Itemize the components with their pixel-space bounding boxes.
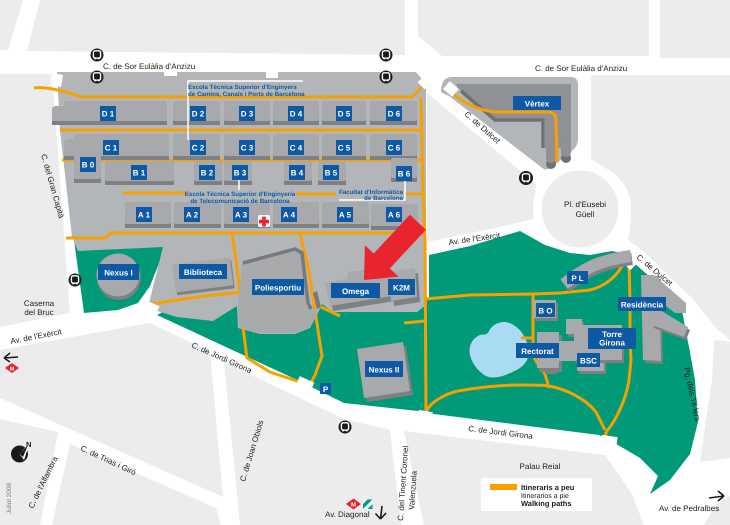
svg-text:D 2: D 2 bbox=[192, 109, 205, 118]
svg-text:C 6: C 6 bbox=[388, 143, 401, 152]
svg-text:P: P bbox=[323, 385, 329, 394]
svg-text:D 3: D 3 bbox=[241, 109, 254, 118]
svg-text:C 1: C 1 bbox=[105, 143, 118, 152]
svg-text:Itineraris a peu: Itineraris a peu bbox=[521, 483, 575, 492]
svg-text:A 1: A 1 bbox=[138, 210, 151, 219]
svg-text:P L: P L bbox=[571, 274, 583, 283]
svg-text:A 3: A 3 bbox=[235, 210, 248, 219]
svg-text:Güell: Güell bbox=[576, 210, 595, 219]
svg-text:Omega: Omega bbox=[342, 287, 370, 296]
svg-text:Biblioteca: Biblioteca bbox=[184, 268, 223, 277]
svg-text:B 4: B 4 bbox=[291, 168, 304, 177]
svg-text:Pl. d'Eusebi: Pl. d'Eusebi bbox=[564, 200, 606, 209]
svg-text:C. de Sor Eulàlia d'Anzizu: C. de Sor Eulàlia d'Anzizu bbox=[535, 64, 627, 73]
svg-text:Av. Diagonal: Av. Diagonal bbox=[325, 510, 370, 519]
svg-text:B 3: B 3 bbox=[234, 168, 247, 177]
svg-text:A 5: A 5 bbox=[339, 210, 352, 219]
svg-text:de Camins, Canals i Ports de B: de Camins, Canals i Ports de Barcelona bbox=[188, 91, 305, 98]
svg-text:N: N bbox=[26, 440, 31, 449]
svg-text:Nexus I: Nexus I bbox=[104, 269, 132, 278]
svg-text:Girona: Girona bbox=[599, 339, 625, 348]
svg-text:Caserna: Caserna bbox=[24, 299, 55, 308]
svg-text:Poliesportiu: Poliesportiu bbox=[255, 284, 301, 293]
svg-text:K2M: K2M bbox=[393, 284, 410, 293]
svg-text:M: M bbox=[351, 502, 356, 509]
svg-text:C 4: C 4 bbox=[290, 143, 303, 152]
svg-text:B 1: B 1 bbox=[133, 168, 146, 177]
svg-text:Escola Tècnica Superior d'Engi: Escola Tècnica Superior d'Enginyeria bbox=[185, 191, 296, 198]
svg-text:D 1: D 1 bbox=[102, 109, 115, 118]
svg-text:Nexus II: Nexus II bbox=[369, 366, 400, 375]
svg-text:C 2: C 2 bbox=[192, 143, 205, 152]
svg-text:Juliol 2008: Juliol 2008 bbox=[6, 483, 13, 514]
svg-text:B O: B O bbox=[538, 307, 552, 316]
svg-text:B 6: B 6 bbox=[398, 169, 411, 178]
svg-text:A 2: A 2 bbox=[186, 210, 199, 219]
svg-text:M: M bbox=[10, 367, 15, 373]
svg-text:D 4: D 4 bbox=[290, 109, 303, 118]
svg-text:A 4: A 4 bbox=[283, 210, 296, 219]
svg-text:B 2: B 2 bbox=[201, 168, 214, 177]
svg-text:Av. de Pedralbes: Av. de Pedralbes bbox=[659, 504, 719, 513]
svg-text:D 5: D 5 bbox=[338, 109, 351, 118]
svg-text:Walking paths: Walking paths bbox=[521, 499, 572, 508]
svg-text:Rectorat: Rectorat bbox=[521, 347, 554, 356]
svg-text:de Barcelona: de Barcelona bbox=[364, 195, 403, 202]
svg-text:Residència: Residència bbox=[621, 301, 664, 310]
svg-text:Palau Reial: Palau Reial bbox=[520, 462, 561, 471]
svg-text:C. de Sor Eulàlia d'Anzizu: C. de Sor Eulàlia d'Anzizu bbox=[103, 62, 195, 71]
svg-text:B 0: B 0 bbox=[82, 160, 95, 169]
svg-text:D 6: D 6 bbox=[388, 109, 401, 118]
svg-text:de Telecomunicació de Barcelon: de Telecomunicació de Barcelona bbox=[190, 198, 290, 205]
svg-text:C 5: C 5 bbox=[338, 143, 351, 152]
svg-text:A 6: A 6 bbox=[388, 210, 401, 219]
svg-text:B 5: B 5 bbox=[325, 168, 338, 177]
svg-text:Escola Tècnica Superior d'Engi: Escola Tècnica Superior d'Enginyers bbox=[188, 84, 297, 91]
svg-text:BSC: BSC bbox=[580, 357, 597, 366]
svg-text:C 3: C 3 bbox=[241, 143, 254, 152]
svg-text:del Bruc: del Bruc bbox=[24, 308, 53, 317]
svg-text:Vèrtex: Vèrtex bbox=[525, 100, 550, 109]
